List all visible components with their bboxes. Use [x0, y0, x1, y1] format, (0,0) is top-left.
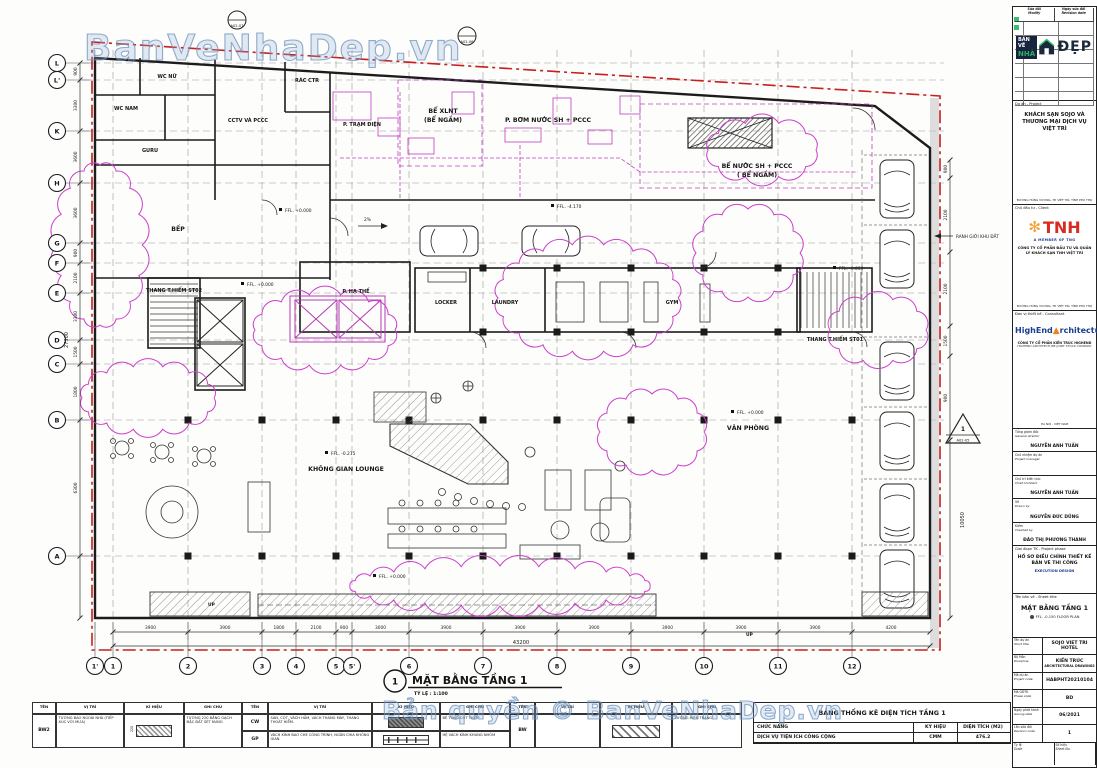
cars: [420, 160, 914, 608]
svg-text:F: F: [55, 259, 59, 267]
ffl-label: FFL. -4.170: [557, 204, 582, 210]
dim-bottom: 1800: [274, 625, 285, 631]
consultant-section: Đơn vị thiết kế - Consultant HighEnd▲rch…: [1013, 311, 1096, 429]
dim-bottom: 3900: [662, 625, 673, 631]
dim-left: 1800: [73, 386, 79, 397]
sheet-title-section: Tên bản vẽ - Sheet title MẶT BẰNG TẦNG 1…: [1013, 594, 1096, 638]
tnh-flower-icon: ✻: [1028, 220, 1041, 235]
tnh-logo: ✻ TNH: [1015, 218, 1094, 237]
dim-bottom: 3900: [145, 625, 156, 631]
svg-text:5': 5': [349, 662, 356, 670]
legend-ten: GP: [242, 731, 268, 748]
legend-header-kyhieu: KÍ HIỆU: [372, 702, 440, 714]
client-label: Chủ đầu tư - Client: [1015, 206, 1094, 210]
personnel-role: Chủ nhiệm dự ánProject manager: [1015, 453, 1094, 462]
dim-left: 3600: [73, 151, 79, 162]
column: [480, 417, 487, 424]
car: [880, 412, 914, 470]
svg-text:L: L: [55, 59, 59, 67]
info-row: Ngày phát hànhIssuing date06/2021: [1013, 708, 1096, 726]
figure-number: 1: [392, 678, 398, 688]
personnel-role: Chủ trì kiến trúcChief Architect: [1015, 477, 1094, 486]
info-row: Mã GĐTKPhase codeBD: [1013, 690, 1096, 708]
ffl-label: FFL. +0.000: [285, 208, 312, 214]
room-label-vanphong: VĂN PHÒNG: [727, 423, 769, 432]
grid-bubble-row-G: G: [49, 235, 66, 252]
svg-text:D: D: [54, 336, 60, 344]
logo-line1: BẢN VẼ: [1016, 36, 1037, 50]
grid-bubble-col-3: 3: [254, 658, 271, 675]
revision-row: [1015, 78, 1094, 92]
column: [849, 417, 856, 424]
scale-row: Tỷ lệ Scale Số hiệu Sheet No.: [1013, 743, 1096, 765]
personnel-name: NGUYỄN ANH TUẤN: [1013, 444, 1096, 449]
dim-bottom: 3900: [810, 625, 821, 631]
project-address: ĐƯỜNG HÙNG VƯƠNG, TP. VIỆT TRÌ, TỈNH PHÚ…: [1014, 199, 1095, 202]
info-value: 06/2021: [1043, 708, 1096, 725]
legend-header-ghichu: GHI CHÚ: [184, 702, 242, 714]
grid-bubble-col-6: 6: [401, 658, 418, 675]
section-marker-number: 1: [961, 426, 965, 433]
project-label: Dự án - Project: [1015, 102, 1094, 106]
grid-bubble-row-K: K: [49, 123, 66, 140]
slope-label: 2%: [364, 217, 371, 223]
room-label-bom: P. BƠM NƯỚC SH + PCCC: [505, 115, 592, 124]
column: [628, 553, 635, 560]
info-label: Mã dự ánProject code: [1013, 673, 1043, 690]
personnel-role: KiểmChecked by: [1015, 524, 1094, 533]
generator-unit: [688, 118, 772, 148]
figure-scale: TỶ LỆ : 1:100: [414, 689, 448, 697]
column: [333, 417, 340, 424]
legend-ten: BW2: [32, 714, 56, 748]
legend-ten: BW: [510, 714, 535, 748]
legend-ten: CW: [242, 714, 268, 731]
svg-text:5: 5: [334, 662, 339, 670]
grid-bubble-col-8: 8: [549, 658, 566, 675]
client-name: CÔNG TY CỔ PHẦN ĐẦU TƯ VÀ QUẢN LÝ KHÁCH …: [1015, 246, 1094, 255]
project-name: KHÁCH SẠN SOJO VÀ THƯƠNG MẠI DỊCH VỤ VIỆ…: [1015, 112, 1094, 133]
info-value: 1: [1043, 725, 1096, 742]
site-boundary: [92, 42, 940, 650]
consultant-label: Đơn vị thiết kế - Consultant: [1015, 312, 1094, 316]
ffl-label: FFL. +0.000: [737, 410, 764, 416]
area-table-cell: 476.2: [958, 733, 1008, 742]
tnh-member-text: A MEMBER OF TNG: [1015, 238, 1094, 242]
info-row: Mã dự ánProject codeHABPHT20210104: [1013, 673, 1096, 691]
grid-bubble-row-D: D: [49, 332, 66, 349]
column: [701, 553, 708, 560]
dim-right: 900: [943, 394, 949, 402]
column: [185, 553, 192, 560]
section-markers: A02-07 A02-06 1 A02-05: [228, 11, 980, 443]
highend-logo-a: HighEnd: [1015, 326, 1053, 335]
room-label-laundry: LAUNDRY: [492, 300, 519, 306]
level-dot-icon: [1030, 615, 1034, 619]
grid-bubble-row-L': L': [49, 72, 66, 89]
highend-logo: HighEnd▲rchitecture: [1015, 326, 1094, 336]
legend-header-ten: TÊN: [32, 702, 56, 714]
client-address: ĐƯỜNG HÙNG VƯƠNG, TP. VIỆT TRÌ, TỈNH PHÚ…: [1014, 305, 1095, 308]
sheet-sub: FFL. -0.150 FLOOR PLAN: [1015, 615, 1094, 619]
revision-cloud: [495, 236, 681, 360]
area-table-header: CHỨC NĂNG: [754, 723, 914, 732]
svg-text:H: H: [54, 179, 59, 187]
info-value: SOJO VIET TRI HOTEL: [1043, 638, 1096, 655]
grid-bubble-col-12: 12: [844, 658, 861, 675]
info-row: Bộ MônDisciplineKIẾN TRÚCARCHITECTURAL D…: [1013, 655, 1096, 673]
dim-left: 3300: [73, 100, 79, 111]
tnh-logo-text: TNH: [1043, 218, 1081, 237]
legend-ghichu: TƯỜNG 220 BẰNG GẠCH ĐẶC ĐẤT SÉT NUNG: [184, 714, 242, 748]
svg-text:3: 3: [260, 662, 265, 670]
house-icon: [1038, 32, 1055, 62]
column: [849, 553, 856, 560]
info-row: Tên dự ánShort titleSOJO VIET TRI HOTEL: [1013, 638, 1096, 656]
sheet-label: Tên bản vẽ - Sheet title: [1015, 595, 1094, 599]
sheet-sub-text: FFL. -0.150 FLOOR PLAN: [1036, 615, 1080, 619]
title-block: Sửa đổi Modify Ngày sửa đổi Revision dat…: [1012, 6, 1097, 768]
section-marker-top-mid: A02-06: [458, 27, 476, 45]
room-label-thang2: THANG T.HIỂM ST02: [146, 286, 203, 294]
revision-cloud: [253, 286, 396, 374]
phase-name: HỒ SƠ ĐIỀU CHỈNH THIẾT KẾ BẢN VẼ THI CÔN…: [1015, 555, 1094, 567]
legend-vitri: TƯỜNG BAO NGOÀI NHÀ (TIẾP XÚC VỚI MƯA): [56, 714, 124, 748]
svg-text:1': 1': [92, 662, 99, 670]
svg-text:6: 6: [407, 662, 412, 670]
legend-header-vitri: VỊ TRÍ: [56, 702, 124, 714]
dim-bottom: 2100: [311, 625, 322, 631]
revision-clouds: [51, 114, 928, 616]
legend-header-ten: TÊN: [510, 702, 535, 714]
client-section: Chủ đầu tư - Client ✻ TNH A MEMBER OF TN…: [1013, 205, 1096, 311]
legend-ghichu: HỆ VÁCH KÍNH KHUNG NHÔM: [440, 731, 510, 748]
ffl-label: FFL. +0.000: [247, 282, 274, 288]
personnel-name: ĐÀO THỊ PHƯƠNG THANH: [1013, 538, 1096, 543]
floor-plan-drawing: 1'123455'6789101112LL'KHGFEDCBA 39003900…: [0, 0, 1012, 700]
sheetno-label: Số hiệu Sheet No.: [1055, 743, 1097, 765]
grid-bubble-col-5: 5: [328, 658, 345, 675]
dim-bottom-total: 43200: [513, 640, 530, 646]
legend-symbol: 220: [124, 714, 184, 748]
grid-bubble-row-B: B: [49, 412, 66, 429]
dim-left: 6300: [73, 482, 79, 493]
dim-left: 3300: [73, 311, 79, 322]
dim-left: 3600: [73, 207, 79, 218]
svg-text:2: 2: [186, 662, 191, 670]
grid-bubble-col-1: 1: [105, 658, 122, 675]
svg-text:1: 1: [111, 662, 116, 670]
svg-text:11: 11: [773, 662, 783, 670]
area-table-cell: CMM: [914, 733, 958, 742]
grid-bubble-row-E: E: [49, 285, 66, 302]
room-label-tram: P. TRẠM ĐIỆN: [343, 120, 381, 128]
personnel-row: Chủ trì kiến trúcChief ArchitectNGUYỄN A…: [1013, 476, 1096, 499]
phase-section: Giai đoạn TK - Project phase HỒ SƠ ĐIỀU …: [1013, 546, 1096, 594]
dim-left: 1500: [73, 346, 79, 357]
dim-left: 900: [73, 249, 79, 257]
area-table-header-row: CHỨC NĂNG KÝ HIỆU DIỆN TÍCH (M2): [754, 723, 1010, 733]
legend-symbol-glass: [383, 735, 429, 745]
area-table-row: DỊCH VỤ TIỆN ÍCH CÔNG CỘNG CMM 476.2: [754, 733, 1010, 743]
ramps: [150, 592, 928, 616]
room-label-hathe: P. HẠ THẾ: [342, 287, 370, 295]
consultant-name-en: HIGHEND ARCHITECTURE JOINT STOCK COMPANY: [1015, 345, 1094, 349]
legend-header-kyhieu: KÍ HIỆU: [124, 702, 184, 714]
cad-sheet: { "watermarks": {"top": "BanVeNhaDep.vn"…: [0, 0, 1097, 748]
dim-bottom: 3900: [441, 625, 452, 631]
logo-line2: NHÀ: [1016, 50, 1037, 59]
personnel-row: KiểmChecked byĐÀO THỊ PHƯƠNG THANH: [1013, 523, 1096, 546]
grid-bubble-row-C: C: [49, 356, 66, 373]
figure-title: MẶT BẰNG TẦNG 1: [412, 672, 528, 687]
dim-right: 1500: [943, 335, 949, 346]
svg-text:10: 10: [699, 662, 709, 670]
area-table-title: BẢNG THỐNG KÊ DIỆN TÍCH TẦNG 1: [754, 703, 1010, 723]
room-label-bexlnt2: (BỂ NGẦM): [424, 114, 462, 124]
scale-label-en: Scale: [1014, 747, 1022, 751]
legend-ghichu: TƯỜNG HIỆN TRẠNG: [672, 714, 742, 748]
car: [880, 342, 914, 400]
column: [554, 417, 561, 424]
info-label: Ngày phát hànhIssuing date: [1013, 708, 1043, 725]
svg-text:9: 9: [629, 662, 634, 670]
legend-symbol: [600, 714, 672, 748]
legend-ghichu: BÊ TÔNG CỐT THÉP: [440, 714, 510, 731]
column: [259, 417, 266, 424]
legend-vitri: VÁCH KÍNH BAO CHE CÔNG TRÌNH, NGĂN CHIA …: [268, 731, 372, 748]
highend-logo-b: rchitecture: [1060, 326, 1097, 335]
svg-text:C: C: [55, 360, 60, 368]
column: [406, 553, 413, 560]
dim-left: 2100: [73, 272, 79, 283]
car: [880, 160, 914, 218]
legend-symbol-concrete: [388, 717, 424, 728]
legend-vitri: SÀN, CỘT, VÁCH HẦM, VÁCH THANG MÁY, THAN…: [268, 714, 372, 731]
room-label-wc-nam: WC NAM: [114, 106, 138, 112]
dim-bottom: 3000: [375, 625, 386, 631]
room-label-cctv: CCTV VÀ PCCC: [228, 117, 269, 124]
info-label: Tên dự ánShort title: [1013, 638, 1043, 655]
svg-text:E: E: [55, 289, 59, 297]
dim-bottom: 3900: [736, 625, 747, 631]
personnel-rows: Tổng giám đốcGeneral directorNGUYỄN ANH …: [1013, 429, 1096, 546]
revision-col2-en: Revision date: [1062, 11, 1086, 15]
personnel-name: NGUYỄN ĐỨC DŨNG: [1013, 515, 1096, 520]
grid-bubble-col-10: 10: [696, 658, 713, 675]
ffl-label: FFL. -0.215: [331, 451, 356, 457]
car: [420, 226, 478, 256]
room-label-bep: BẾP: [171, 223, 185, 233]
dim-bottom: 3900: [515, 625, 526, 631]
scale-label: Tỷ lệ Scale: [1013, 743, 1055, 765]
project-section: Dự án - Project KHÁCH SẠN SOJO VÀ THƯƠNG…: [1013, 101, 1096, 205]
grid-bubble-row-F: F: [49, 255, 66, 272]
revision-cloud: [828, 291, 928, 368]
highend-triangle-icon: ▲: [1053, 326, 1060, 336]
personnel-role: Tổng giám đốcGeneral director: [1015, 430, 1094, 439]
grid-bubble-col-11: 11: [770, 658, 787, 675]
legend-header-vitri: VỊ TRÍ: [535, 702, 600, 714]
legend-symbol-diag: [612, 725, 660, 738]
info-value: HABPHT20210104: [1043, 673, 1096, 690]
svg-text:7: 7: [481, 662, 486, 670]
grid-bubble-row-A: A: [49, 548, 66, 565]
info-label: Mã GĐTKPhase code: [1013, 690, 1043, 707]
car: [880, 230, 914, 288]
section-marker-top-left: A02-07: [228, 11, 246, 29]
dim-right: 2100: [943, 283, 949, 294]
boundary-band: [930, 98, 939, 648]
ffl-label: FFL. -0.050: [839, 266, 864, 272]
svg-text:8: 8: [555, 662, 560, 670]
dim-bottom: 900: [340, 625, 348, 631]
legend-symbol-dim: 220: [130, 726, 134, 732]
area-table-header: DIỆN TÍCH (M2): [958, 723, 1008, 732]
svg-text:A: A: [54, 552, 59, 560]
info-label: Lần sửa đổiRevision code: [1013, 725, 1043, 742]
phase-name-en: EXECUTION DESIGN: [1015, 569, 1094, 573]
column: [554, 553, 561, 560]
grid-bubble-col-4: 4: [288, 658, 305, 675]
column: [259, 553, 266, 560]
revision-cloud: [693, 204, 803, 301]
legend-header-ghichu: GHI CHÚ: [440, 702, 510, 714]
legend-header-vitri: VỊ TRÍ: [268, 702, 372, 714]
room-label-wc-nu: WC NỮ: [157, 73, 177, 80]
room-label-bexlnt: BỂ XLNT: [428, 105, 458, 115]
info-rows: Tên dự ánShort titleSOJO VIET TRI HOTELB…: [1013, 638, 1096, 743]
svg-text:12: 12: [847, 662, 856, 670]
svg-text:L': L': [54, 76, 60, 84]
area-table-header: KÝ HIỆU: [914, 723, 958, 732]
level-labels: FFL. +0.000 FFL. +0.000 FFL. -4.170 FFL.…: [241, 204, 864, 580]
up-label-left: UP: [208, 602, 216, 608]
info-label: Bộ MônDiscipline: [1013, 655, 1043, 672]
section-marker-label: A02-06: [461, 40, 475, 44]
dim-left: 900: [73, 67, 79, 75]
grid-bubble-col-2: 2: [180, 658, 197, 675]
info-value: BD: [1043, 690, 1096, 707]
up-label-right: UP: [746, 632, 754, 638]
svg-text:4: 4: [294, 662, 299, 670]
area-statistics-table: BẢNG THỐNG KÊ DIỆN TÍCH TẦNG 1 CHỨC NĂNG…: [753, 702, 1011, 744]
car: [880, 484, 914, 542]
grid-bubble-col-7: 7: [475, 658, 492, 675]
legend-header-ghichu: GHI CHÚ: [672, 702, 742, 714]
svg-text:G: G: [54, 239, 59, 247]
revision-table: Sửa đổi Modify Ngày sửa đổi Revision dat…: [1013, 7, 1096, 101]
dim-bottom: 3900: [220, 625, 231, 631]
legend-symbol: [372, 714, 440, 731]
personnel-row: Tổng giám đốcGeneral directorNGUYỄN ANH …: [1013, 429, 1096, 452]
section-marker-label: A02-05: [957, 439, 970, 443]
room-label-lounge: KHÔNG GIAN LOUNGE: [308, 464, 384, 473]
info-row: Lần sửa đổiRevision code1: [1013, 725, 1096, 743]
grid-bubble-row-H: H: [49, 175, 66, 192]
column: [185, 417, 192, 424]
elevators: [197, 296, 385, 386]
column: [333, 553, 340, 560]
grid-bubble-col-5': 5': [344, 658, 361, 675]
column: [775, 553, 782, 560]
phase-label: Giai đoạn TK - Project phase: [1015, 547, 1094, 551]
sheet-name: MẶT BẰNG TẦNG 1: [1015, 604, 1094, 612]
legend-vitri: [535, 714, 600, 748]
car: [522, 226, 580, 256]
room-label-thang1: THANG T.HIỂM ST01: [807, 335, 864, 343]
svg-text:B: B: [55, 416, 60, 424]
revision-col1-en: Modify: [1028, 11, 1040, 15]
room-label-rac: RÁC CTR: [295, 77, 319, 84]
grid-bubble-row-L: L: [49, 55, 66, 72]
column: [628, 417, 635, 424]
room-label-benuoc: BỂ NƯỚC SH + PCCC: [722, 160, 793, 170]
consultant-address: HÀ NỘI - VIỆT NAM: [1014, 423, 1095, 426]
personnel-row: Chủ nhiệm dự ánProject manager: [1013, 452, 1096, 475]
personnel-role: VẽDrawn by: [1015, 500, 1094, 509]
legend-header-kyhieu: KÍ HIỆU: [600, 702, 672, 714]
column: [775, 417, 782, 424]
dim-bottom: 3900: [589, 625, 600, 631]
banvenhadep-logo: BẢN VẼ NHÀ ĐẸP: [1016, 20, 1092, 74]
room-label-guru: GURU: [142, 148, 158, 154]
personnel-row: VẽDrawn byNGUYỄN ĐỨC DŨNG: [1013, 499, 1096, 522]
dim-right: 2100: [943, 209, 949, 220]
dim-right-total: 10050: [960, 512, 966, 528]
dimensions: 3900390018002100900300039003900390039003…: [64, 61, 966, 649]
ffl-label: FFL. +0.000: [379, 574, 406, 580]
personnel-name: NGUYỄN ANH TUẤN: [1013, 491, 1096, 496]
grid-lines: [82, 50, 944, 642]
legend-symbol: [372, 731, 440, 748]
legend-symbol-brick: 220: [136, 725, 172, 737]
room-label-locker: LOCKER: [435, 300, 457, 306]
room-label-benuoc2: ( BỂ NGẦM): [737, 169, 777, 179]
grid-bubble-col-1': 1': [87, 658, 104, 675]
revision-cloud: [597, 389, 706, 475]
boundary-label: RANH GIỚI KHU ĐẤT: [956, 234, 999, 239]
area-table-cell: DỊCH VỤ TIỆN ÍCH CÔNG CỘNG: [754, 733, 914, 742]
dim-left-total: 27300: [64, 332, 70, 348]
sheetno-label-en: Sheet No.: [1056, 747, 1071, 751]
info-value: KIẾN TRÚCARCHITECTURAL DRAWINGS: [1043, 655, 1096, 672]
grid-bubble-col-9: 9: [623, 658, 640, 675]
room-label-gym: GYM: [666, 300, 679, 306]
logo-word: ĐẸP: [1057, 39, 1092, 55]
legend-header-ten: TÊN: [242, 702, 268, 714]
section-marker-label: A02-07: [231, 24, 244, 28]
dim-bottom: 4200: [886, 625, 897, 631]
dim-right: 900: [943, 165, 949, 173]
